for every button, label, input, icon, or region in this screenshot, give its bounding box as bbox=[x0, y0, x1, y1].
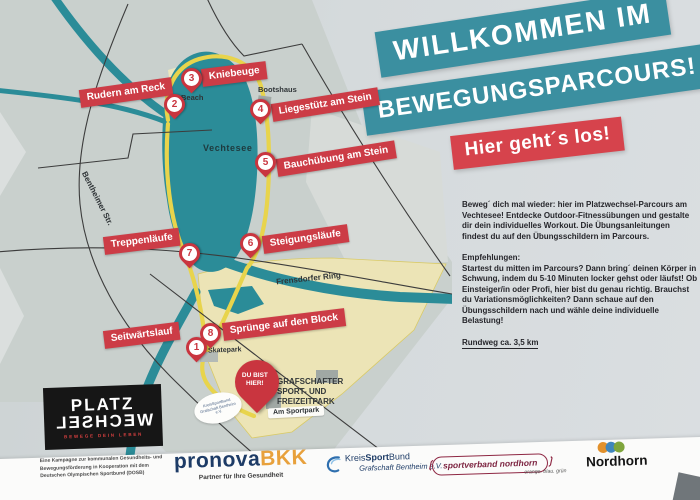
parcours-sign-board: Beach Bootshaus Vechtesee Bentheimer Str… bbox=[0, 0, 700, 500]
intro-paragraph: Beweg´ dich mal wieder: hier im Platzwec… bbox=[462, 200, 698, 242]
pronova-bkk-logo: pronovaBKK Partner für Ihre Gesundheit bbox=[174, 446, 308, 482]
intro-text-block: Beweg´ dich mal wieder: hier im Platzwec… bbox=[462, 200, 698, 360]
you-are-here-text: DU BIST bbox=[242, 372, 268, 380]
pronova-bkk-wordmark: pronovaBKK bbox=[174, 446, 308, 474]
boathouse-label: Bootshaus bbox=[258, 85, 297, 94]
nordhorn-logo: Nordhorn orange. blau. grün bbox=[523, 437, 684, 482]
recommendations-paragraph: Startest du mitten im Parcours? Dann bri… bbox=[462, 264, 698, 327]
campaign-smallprint: Eine Kampagne zur kommunalen Gesundheits… bbox=[40, 454, 175, 481]
lake-label: Vechtesee bbox=[203, 143, 252, 153]
platzwechsel-logo: PLATZ WECHSEL BEWEGE DEIN LEBEN bbox=[43, 384, 163, 450]
platzwechsel-word2: WECHSEL bbox=[53, 411, 153, 432]
distance-note: Rundweg ca. 3,5 km bbox=[462, 338, 698, 349]
nordhorn-dots-icon bbox=[597, 441, 624, 453]
skatepark-label: Skatepark bbox=[208, 346, 242, 354]
freizeitpark-label: GRAFSCHAFTER SPORT- UND FREIZEITPARK bbox=[277, 377, 367, 407]
nordhorn-tagline: orange. blau. grün bbox=[524, 468, 566, 475]
platzwechsel-tagline: BEWEGE DEIN LEBEN bbox=[64, 432, 143, 440]
you-are-here-text: HIER! bbox=[246, 380, 264, 388]
title-tagline: Hier geht´s los! bbox=[450, 117, 625, 170]
nordhorn-wordmark: Nordhorn bbox=[586, 453, 648, 470]
recommendations-heading: Empfehlungen: bbox=[462, 253, 698, 264]
ksb-swoosh-icon bbox=[326, 455, 343, 473]
